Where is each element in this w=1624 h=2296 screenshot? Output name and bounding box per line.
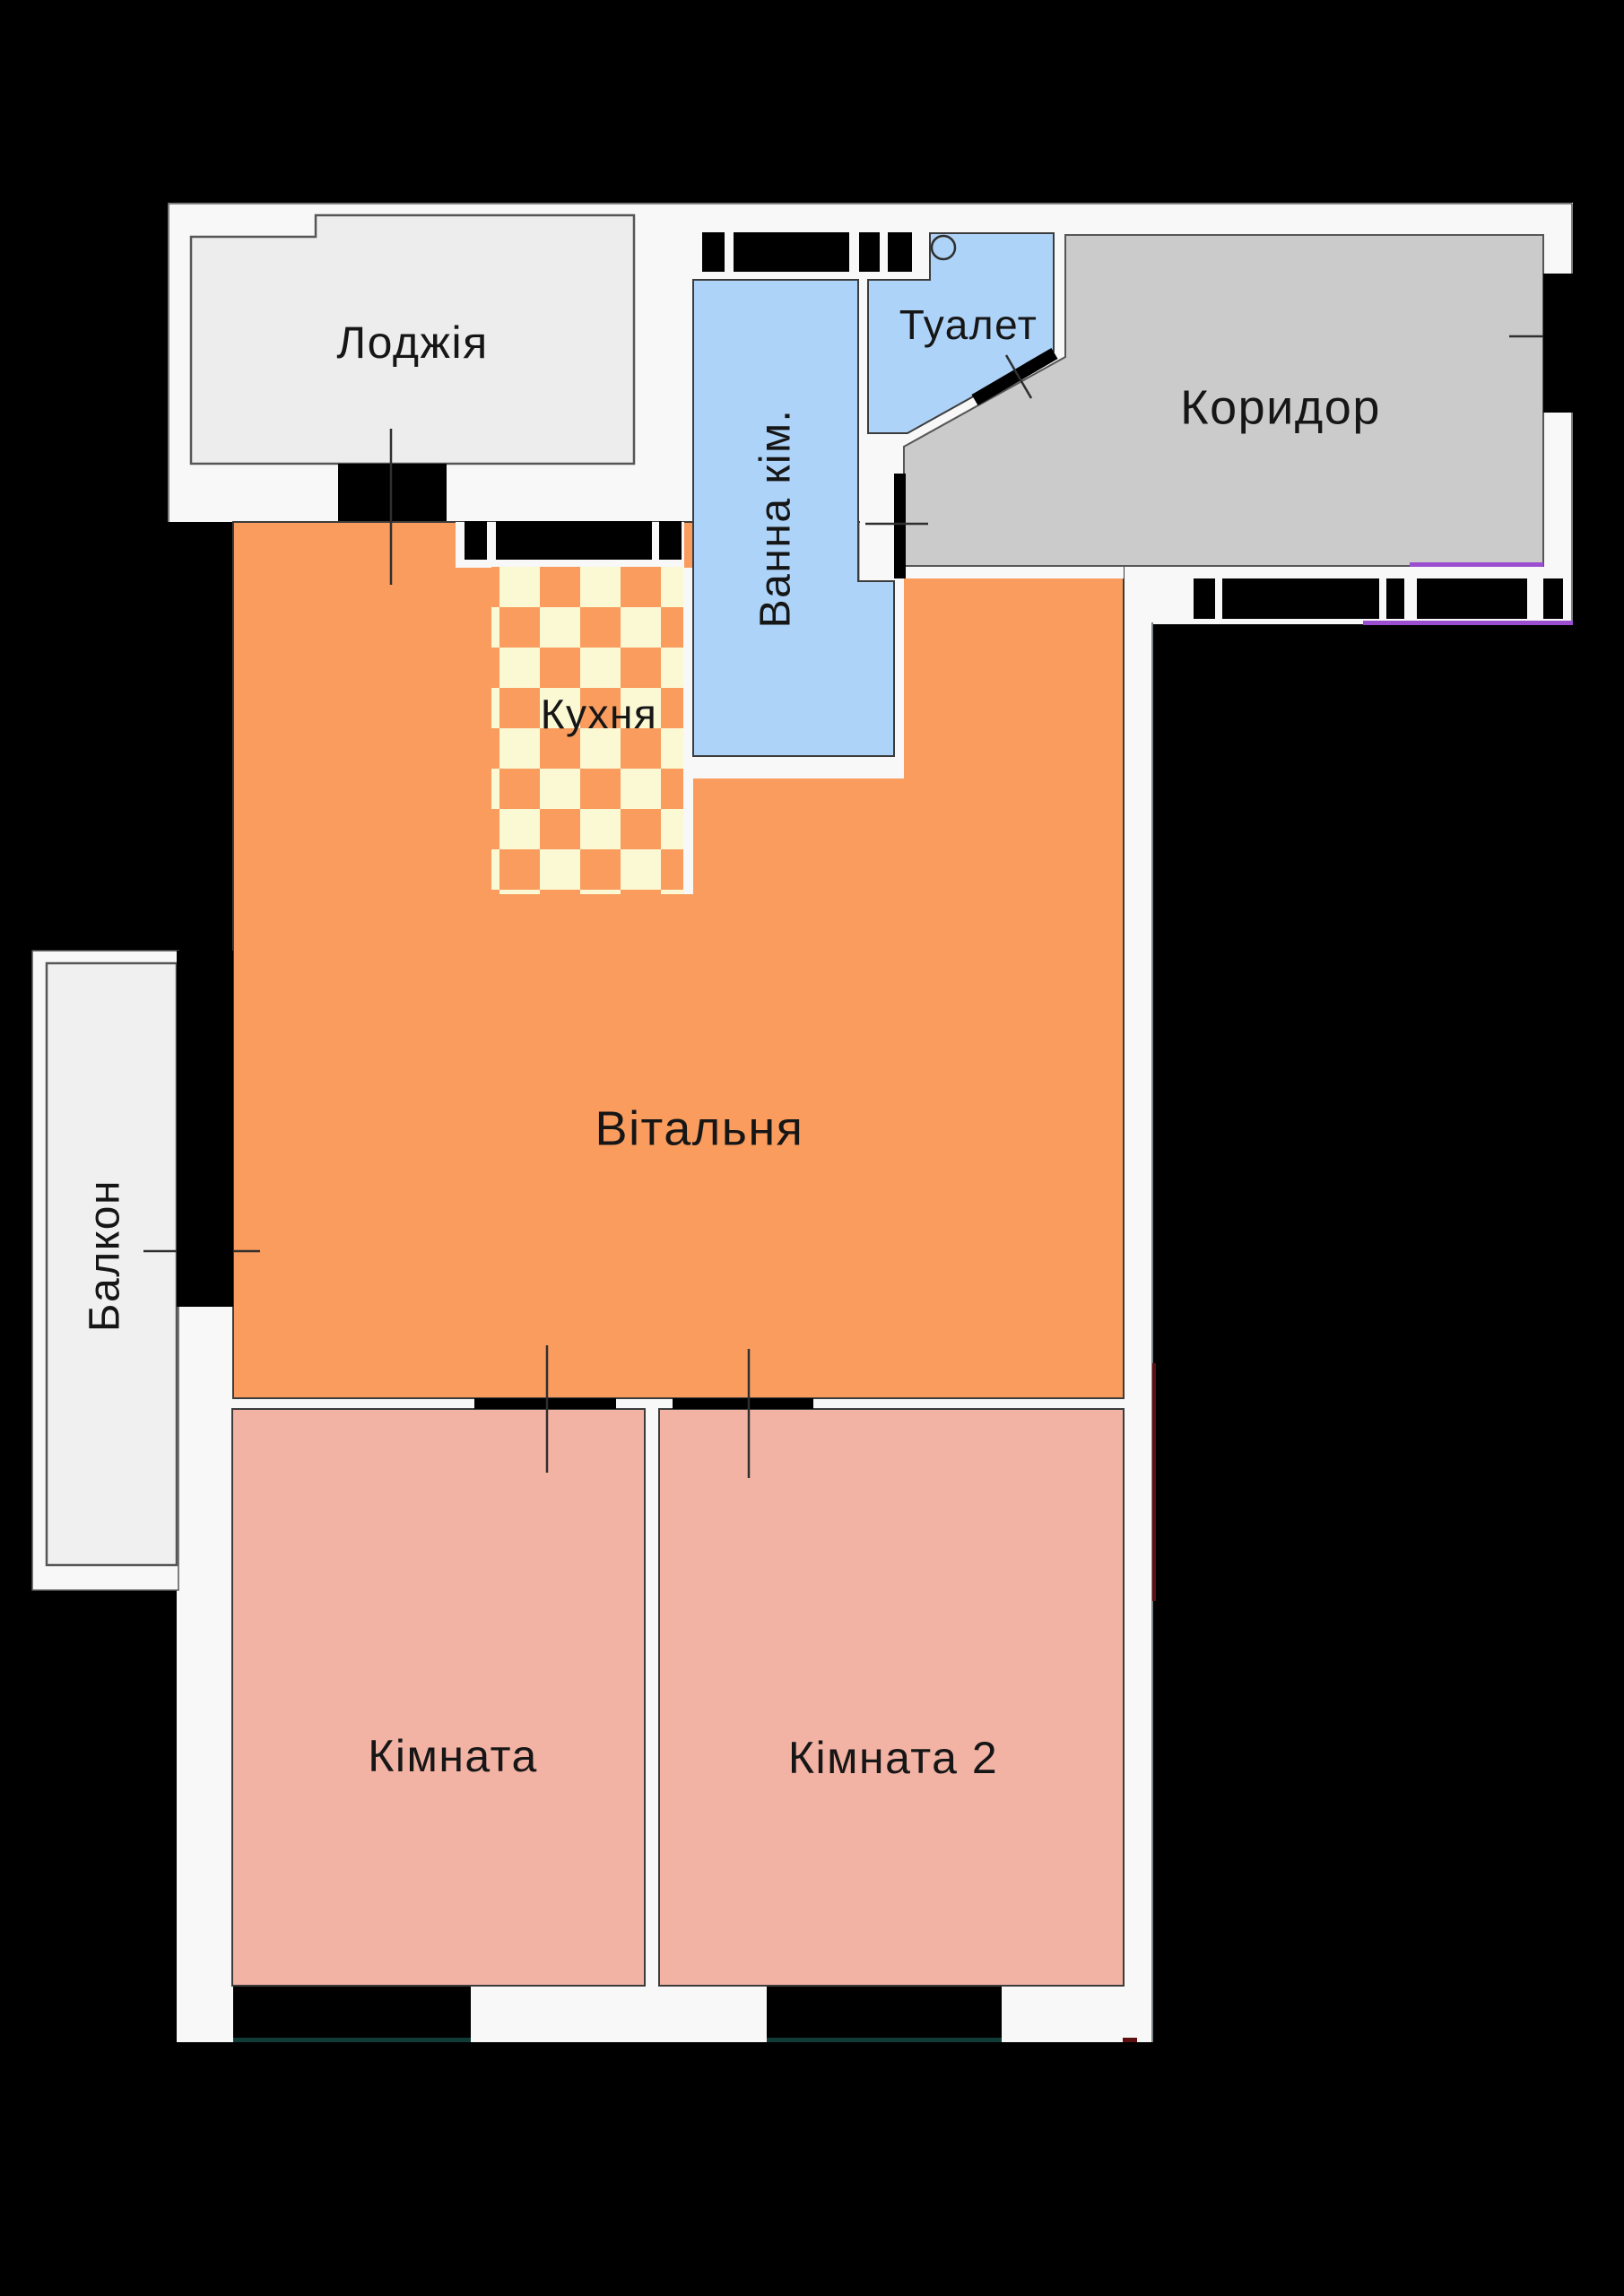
room-balcony-label: Балкон	[82, 1179, 129, 1332]
floor-plan-canvas: Лоджія Ванна кім. Туалет Коридор Кухня В…	[0, 0, 1624, 2296]
room-1-label: Кімната	[368, 1731, 538, 1781]
room-2-label: Кімната 2	[788, 1733, 998, 1783]
room-bathroom-label: Ванна кім.	[752, 409, 800, 629]
room-living-label: Вітальня	[595, 1101, 804, 1155]
room-2-area	[659, 1409, 1124, 1986]
room-kitchen-label: Кухня	[541, 691, 658, 737]
room-toilet-label: Туалет	[899, 301, 1038, 348]
floor-plan-drawing: Лоджія Ванна кім. Туалет Коридор Кухня В…	[0, 0, 1624, 2296]
room-1-area	[232, 1409, 645, 1986]
room-corridor-label: Коридор	[1180, 380, 1381, 434]
sheet-area-right-column	[1124, 578, 1153, 1395]
room-loggia-label: Лоджія	[336, 317, 488, 368]
